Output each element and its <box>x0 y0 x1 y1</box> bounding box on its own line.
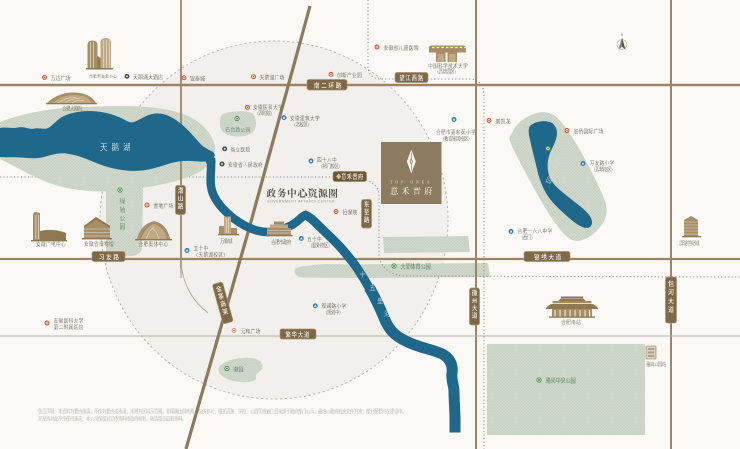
svg-text:GOVERNMENT AFFAIRS CENTER: GOVERNMENT AFFAIRS CENTER <box>267 199 335 204</box>
svg-text:TOP ONES: TOP ONES <box>390 181 432 185</box>
